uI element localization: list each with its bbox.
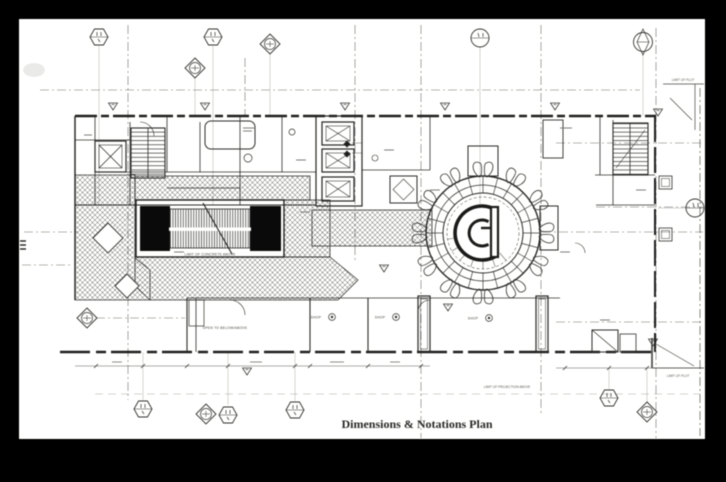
escalator-left-mass xyxy=(140,206,170,251)
drawing-caption: Dimensions & Notations Plan xyxy=(341,417,492,431)
open-to-below-label: OPEN TO BELOW/ABOVE xyxy=(203,326,248,330)
floor-plan-drawing: LIMIT OF CONCRETE ABOVE xyxy=(0,0,726,482)
scan-smudge xyxy=(23,63,45,77)
limit-of-plot-bottom-label: LIMIT OF PLOT xyxy=(667,374,691,378)
scanned-drawing-page: LIMIT OF CONCRETE ABOVE xyxy=(0,0,726,482)
limit-of-plot-top-label: LIMIT OF PLOT xyxy=(672,78,696,82)
shop-label-1: SHOP xyxy=(311,316,322,320)
escalator-right-mass xyxy=(250,206,281,251)
limit-of-projection-label: LIMIT OF PROJECTION ABOVE xyxy=(484,385,531,389)
limit-of-concrete-label: LIMIT OF CONCRETE ABOVE xyxy=(184,253,236,257)
shop-label-3: SHOP xyxy=(468,317,479,321)
shop-label-2: SHOP xyxy=(375,316,386,320)
